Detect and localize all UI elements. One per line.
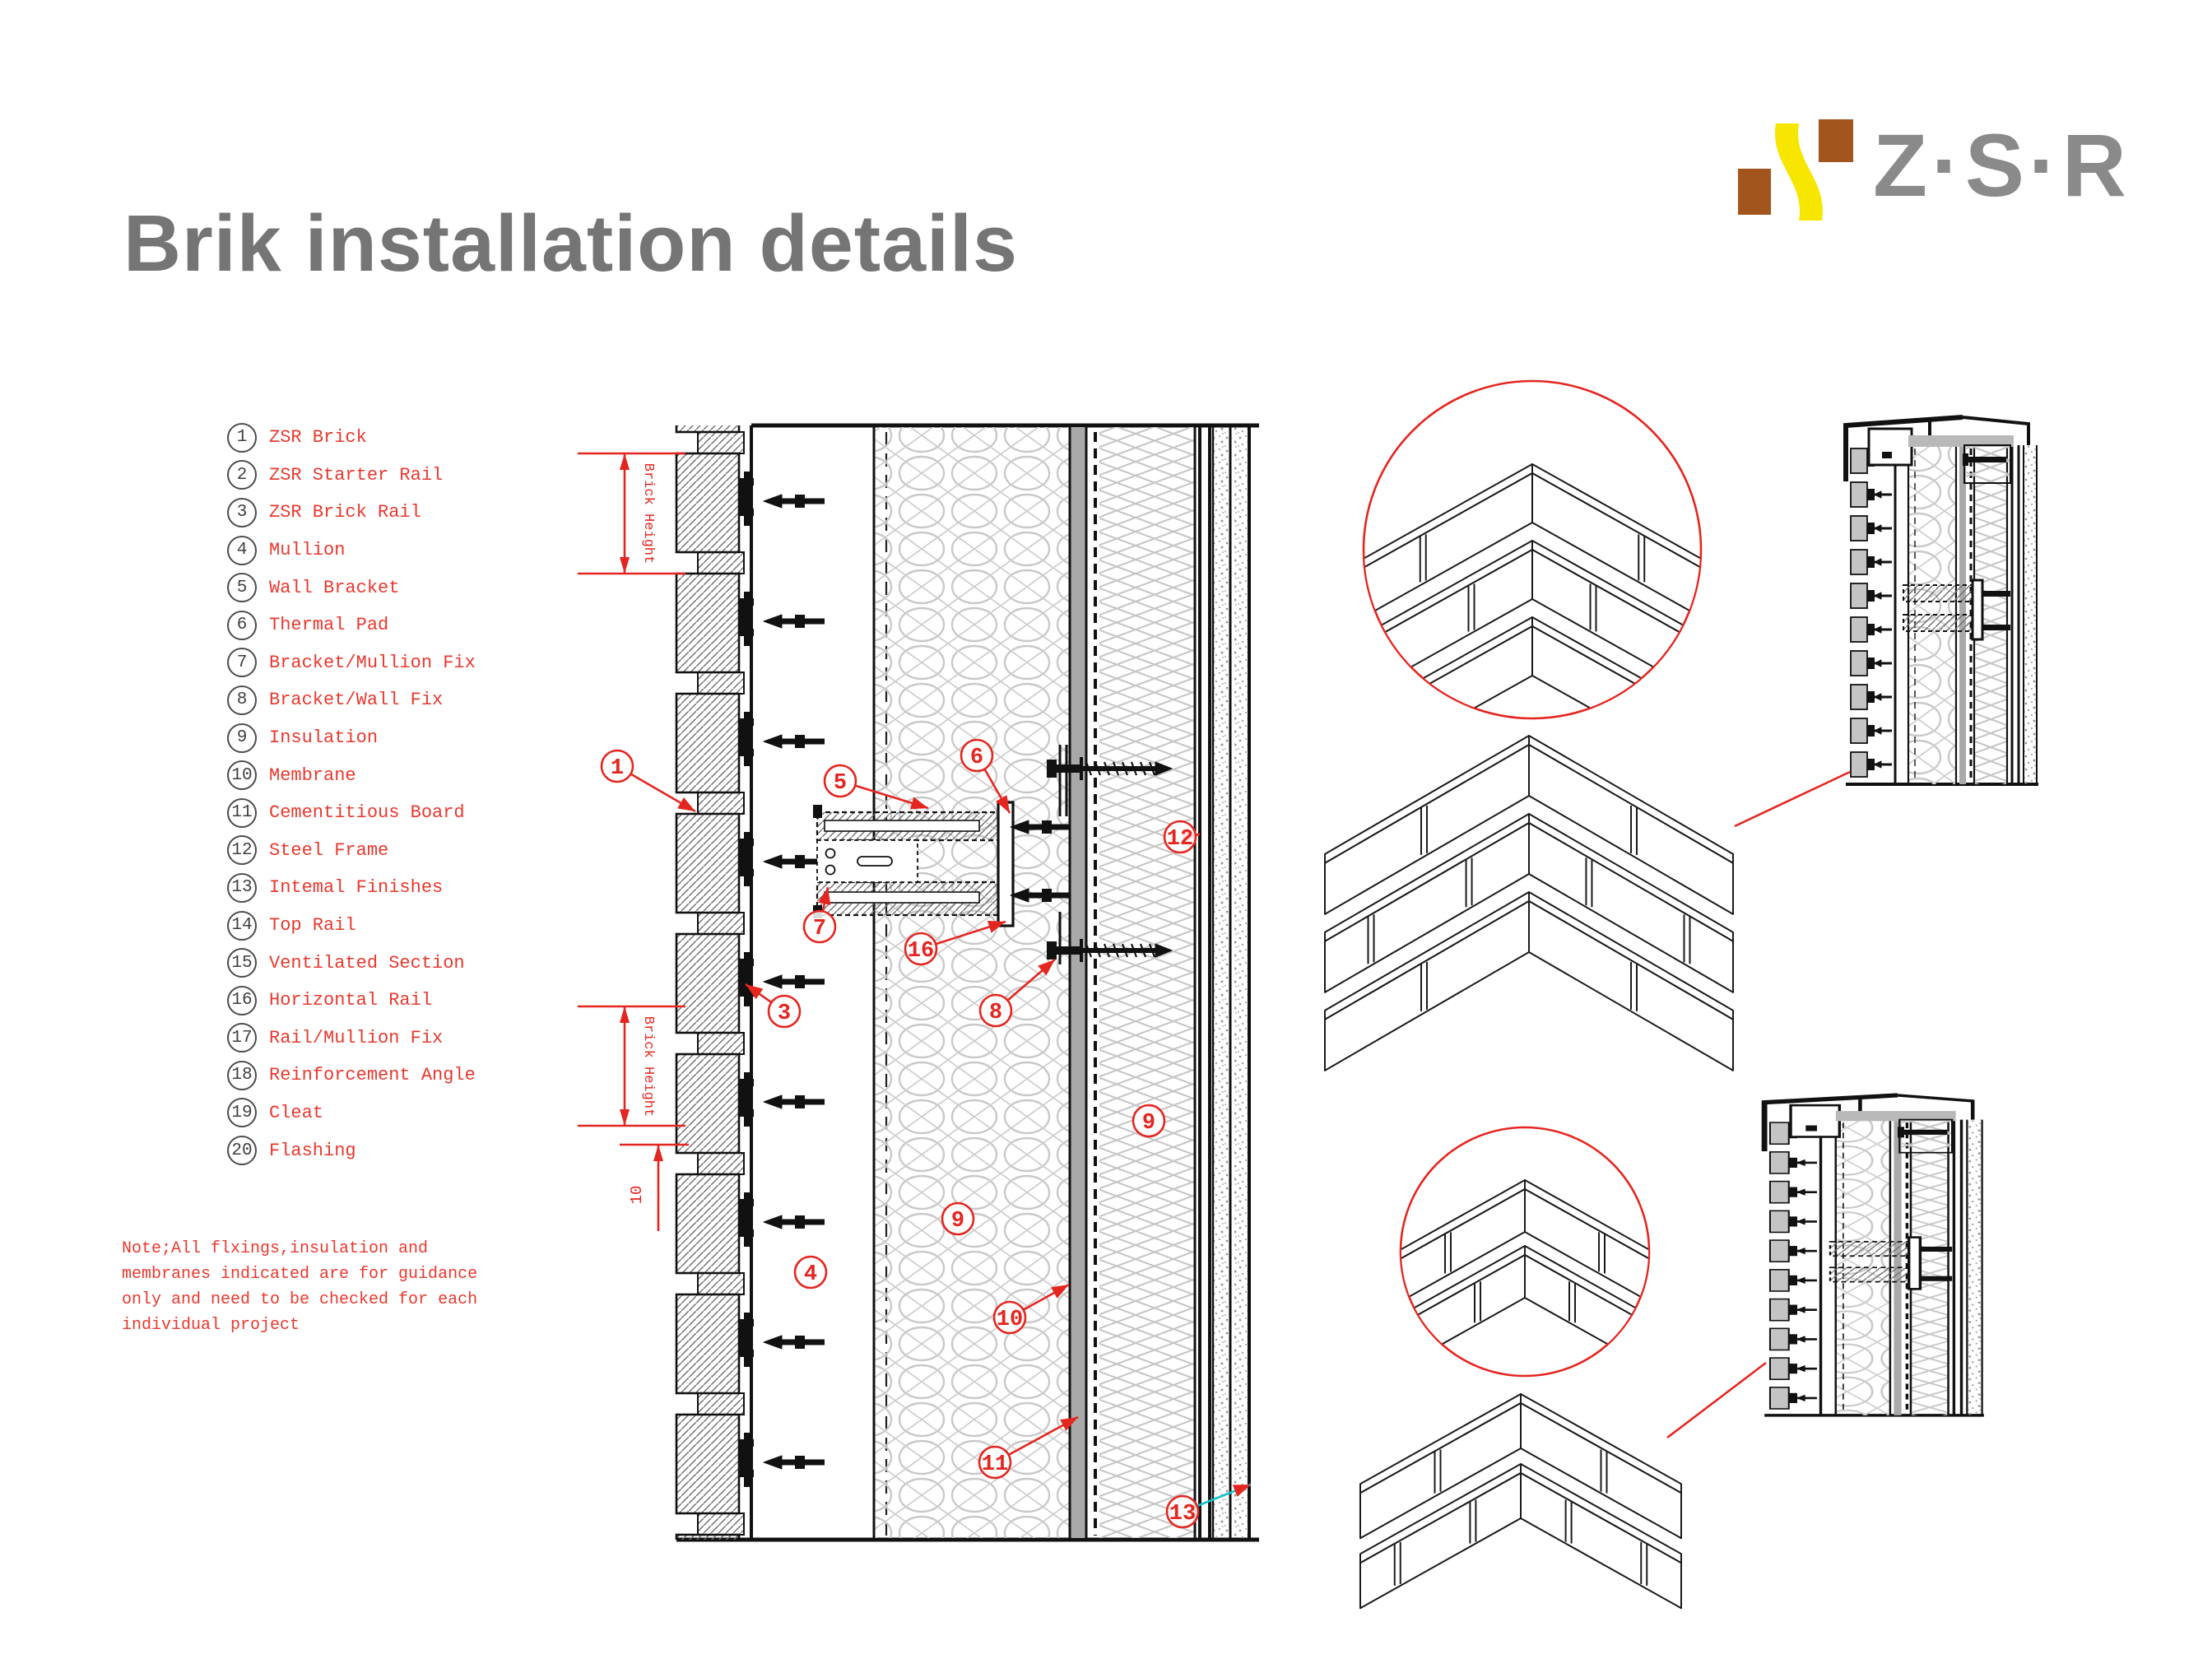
detail-section-bottom-right xyxy=(1764,1095,1984,1415)
svg-text:Brick Height: Brick Height xyxy=(640,463,656,564)
brick-corner-detail-bottom xyxy=(1377,1180,1673,1381)
callout-number: 9 xyxy=(951,1209,964,1234)
cementitious-board-layer xyxy=(1213,427,1229,1538)
brick-corner-detail-top xyxy=(1339,464,1726,784)
dimensions: Brick Height Brick Height 10 xyxy=(578,453,689,1231)
callout-number: 9 xyxy=(1142,1111,1155,1136)
svg-text:Brick Height: Brick Height xyxy=(640,1016,656,1117)
callout-number: 16 xyxy=(908,939,934,964)
detail-section-top-right xyxy=(1846,417,2038,784)
dimension-brick-height-top: Brick Height xyxy=(578,453,685,574)
callout-number: 13 xyxy=(1169,1502,1196,1527)
svg-text:10: 10 xyxy=(628,1186,646,1205)
callout-number: 6 xyxy=(970,746,983,770)
thermal-pad xyxy=(998,802,1013,926)
corner-assembly-top xyxy=(1325,736,1733,1071)
callout-number: 11 xyxy=(982,1452,1008,1477)
callout-number: 4 xyxy=(804,1262,817,1287)
dimension-brick-height-mid: Brick Height xyxy=(578,1006,685,1126)
inner-insulation-layer xyxy=(1099,427,1195,1538)
callout-number: 7 xyxy=(813,917,826,941)
callout-number: 8 xyxy=(989,1001,1002,1025)
membrane-layer xyxy=(1070,427,1086,1538)
wall-layers xyxy=(676,425,1259,1540)
technical-drawing: Brick Height Brick Height 10 xyxy=(0,0,2212,1659)
callout-number: 5 xyxy=(834,771,847,796)
callout-number: 12 xyxy=(1167,827,1193,852)
callout-number: 10 xyxy=(997,1308,1023,1332)
callout-number: 1 xyxy=(611,756,624,781)
callout-number: 3 xyxy=(778,1001,791,1026)
corner-assembly-bottom xyxy=(1360,1394,1681,1608)
internal-finish-layer xyxy=(1234,427,1248,1538)
insulation-layer xyxy=(874,427,1070,1538)
slide: Brik installation details Z·S·R 1ZSR Bri… xyxy=(0,0,2212,1659)
